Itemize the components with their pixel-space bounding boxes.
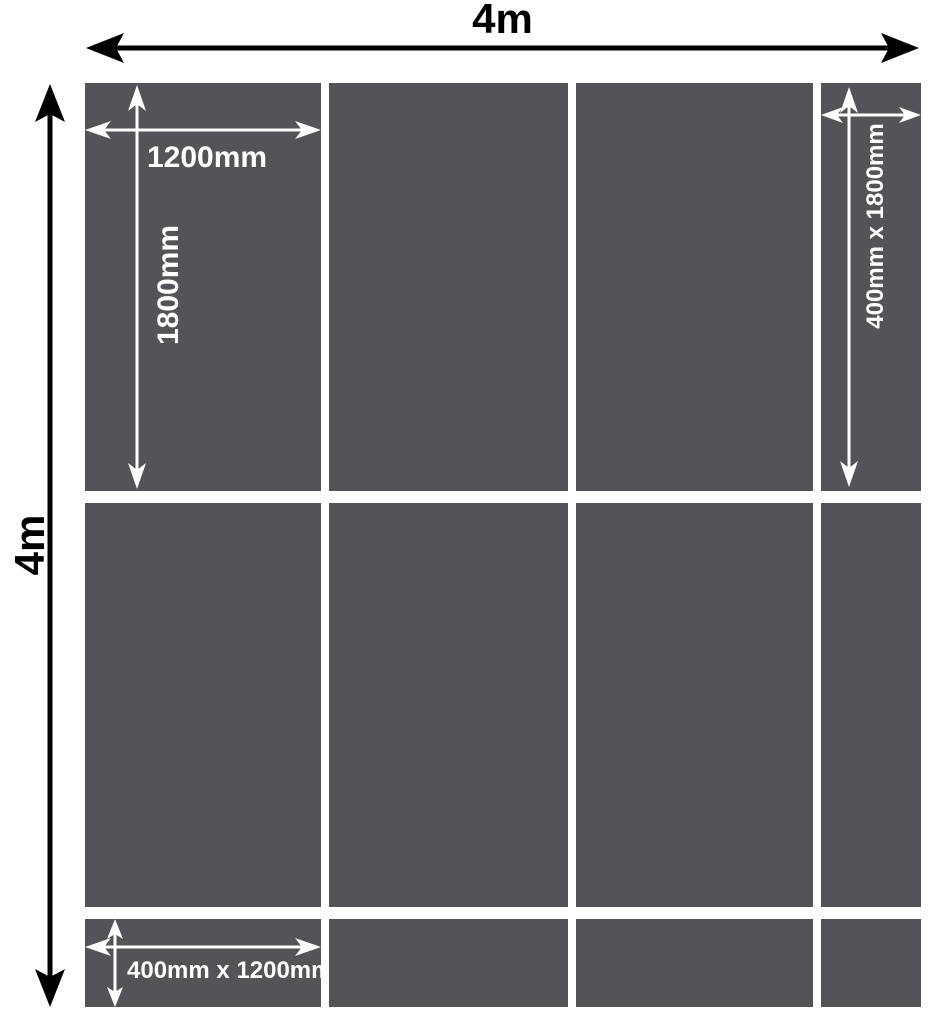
top-dimension-arrow: [85, 30, 920, 66]
panel-r1c1: 1200mm 1800mm: [85, 83, 321, 491]
panel-r1c4: 400mm x 1800mm: [821, 83, 921, 491]
panel-r2c1: [85, 503, 321, 907]
panel-r2c4: [821, 503, 921, 907]
panel-width-label: 1200mm: [147, 143, 267, 173]
height-dimension-arrow-1800-narrow: [837, 87, 861, 487]
narrow-panel-size-label: 400mm x 1800mm: [864, 123, 888, 328]
panel-r1c2: [329, 83, 568, 491]
panel-r3c2: [329, 919, 568, 1007]
panel-height-label: 1800mm: [154, 225, 184, 345]
panel-r2c2: [329, 503, 568, 907]
panel-r2c3: [576, 503, 813, 907]
short-panel-size-label: 400mm x 1200mm: [127, 959, 332, 983]
left-dimension-arrow: [32, 83, 68, 1008]
panel-r3c3: [576, 919, 813, 1007]
width-dimension-arrow-1200: [85, 118, 321, 142]
panel-r3c4: [821, 919, 921, 1007]
panel-r1c3: [576, 83, 813, 491]
height-dimension-arrow-1800: [125, 85, 149, 489]
height-dimension-arrow-400: [103, 919, 127, 1007]
panel-grid: 1200mm 1800mm 400mm x 1800mm: [85, 83, 921, 1007]
panel-layout-diagram: 4m 4m 1200mm 1800mm: [0, 0, 942, 1030]
panel-r3c1: 400mm x 1200mm: [85, 919, 321, 1007]
